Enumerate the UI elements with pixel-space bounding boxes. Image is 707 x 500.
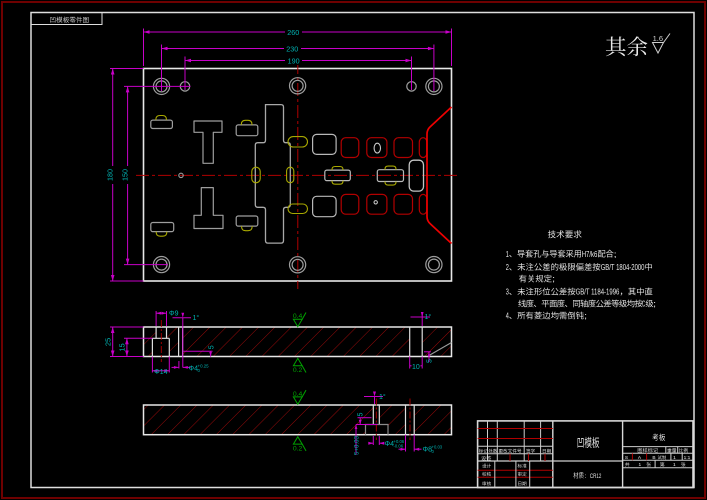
svg-text:1°: 1° (425, 313, 432, 321)
svg-text:1°: 1° (193, 314, 200, 322)
svg-text:180: 180 (105, 169, 114, 181)
svg-text:15: 15 (118, 343, 127, 351)
svg-text:GB/T 1804-2000: GB/T 1804-2000 (601, 263, 645, 272)
svg-text:1: 1 (638, 462, 641, 468)
svg-text::: : (585, 473, 587, 480)
svg-text:4: 4 (506, 312, 510, 321)
svg-text:25: 25 (103, 338, 112, 346)
svg-text:GB/T 1184-1996: GB/T 1184-1996 (576, 288, 620, 297)
svg-text:10: 10 (412, 364, 420, 371)
svg-text:0.4: 0.4 (293, 313, 303, 320)
svg-text:C: C (642, 300, 645, 309)
svg-text:1: 1 (506, 250, 509, 259)
svg-text:Φ14: Φ14 (154, 369, 167, 376)
svg-text:CR12: CR12 (590, 473, 602, 480)
svg-text:;: ; (653, 300, 656, 309)
svg-text:1°: 1° (379, 393, 386, 401)
svg-text:-0.06: -0.06 (394, 444, 404, 449)
svg-text:5: 5 (209, 345, 216, 349)
svg-text:5: 5 (358, 412, 365, 416)
svg-text:3: 3 (506, 288, 510, 297)
svg-text:1: 1 (673, 462, 676, 468)
svg-text:2: 2 (506, 263, 509, 272)
svg-text:1.6: 1.6 (653, 34, 663, 43)
svg-text:B: B (652, 455, 655, 461)
svg-text:0.2: 0.2 (293, 446, 303, 453)
svg-text:;: ; (614, 250, 617, 259)
svg-text:Φ9: Φ9 (169, 311, 179, 318)
svg-text:230: 230 (286, 45, 298, 54)
svg-text:1:1: 1:1 (684, 455, 691, 461)
svg-text:5: 5 (427, 359, 434, 363)
svg-text:1: 1 (673, 455, 676, 461)
svg-text:5+0.03: 5+0.03 (353, 435, 360, 455)
svg-text:150: 150 (120, 169, 129, 181)
svg-text:190: 190 (288, 57, 300, 66)
svg-text:S: S (625, 455, 628, 461)
svg-text:0.4: 0.4 (293, 391, 303, 398)
svg-text:;: ; (552, 275, 555, 284)
svg-text:0.2: 0.2 (293, 367, 303, 374)
svg-text:H7/k6: H7/k6 (582, 250, 598, 259)
svg-text:260: 260 (287, 28, 299, 37)
svg-text:;: ; (584, 312, 587, 321)
